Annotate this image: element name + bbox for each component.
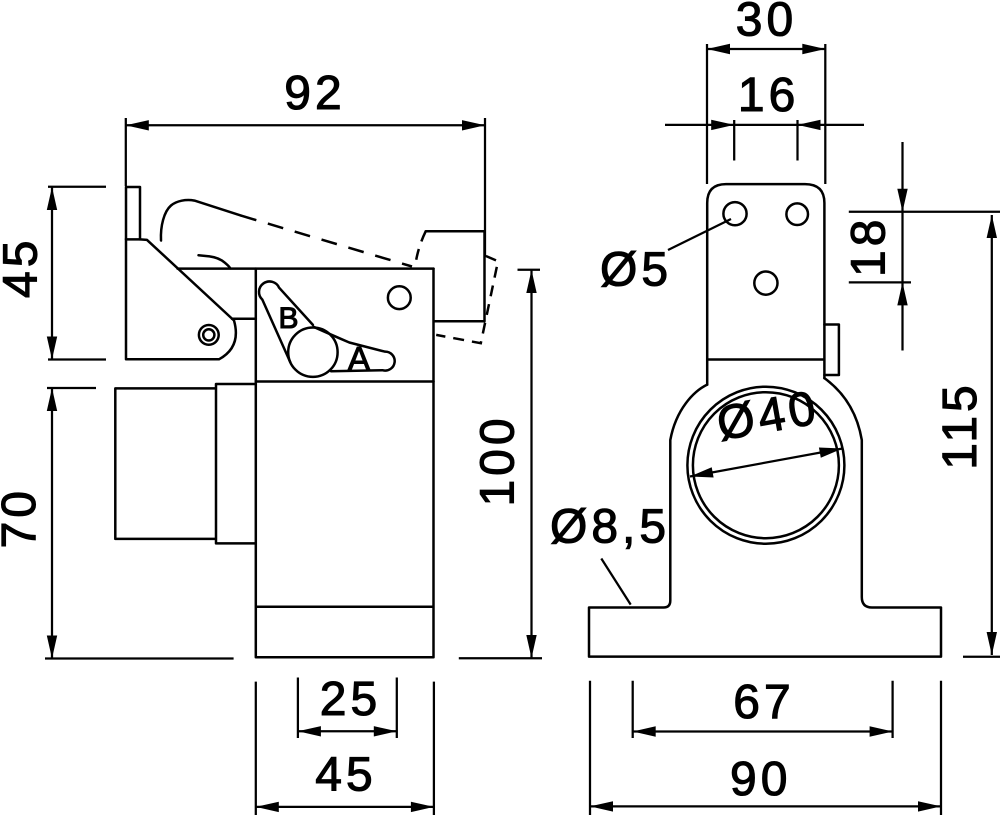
svg-text:90: 90	[730, 753, 791, 806]
svg-text:100: 100	[472, 414, 525, 506]
svg-text:115: 115	[934, 381, 987, 470]
svg-text:18: 18	[843, 216, 896, 277]
svg-text:B: B	[278, 302, 302, 335]
svg-text:16: 16	[738, 69, 799, 122]
svg-text:67: 67	[733, 676, 794, 729]
svg-text:92: 92	[284, 67, 345, 120]
svg-text:25: 25	[320, 673, 381, 726]
svg-text:A: A	[348, 340, 375, 378]
svg-text:70: 70	[0, 487, 46, 548]
svg-text:45: 45	[315, 749, 376, 802]
svg-text:Ø5: Ø5	[600, 244, 672, 297]
svg-text:Ø8,5: Ø8,5	[550, 501, 670, 554]
svg-text:30: 30	[736, 0, 797, 47]
svg-text:45: 45	[0, 237, 48, 298]
